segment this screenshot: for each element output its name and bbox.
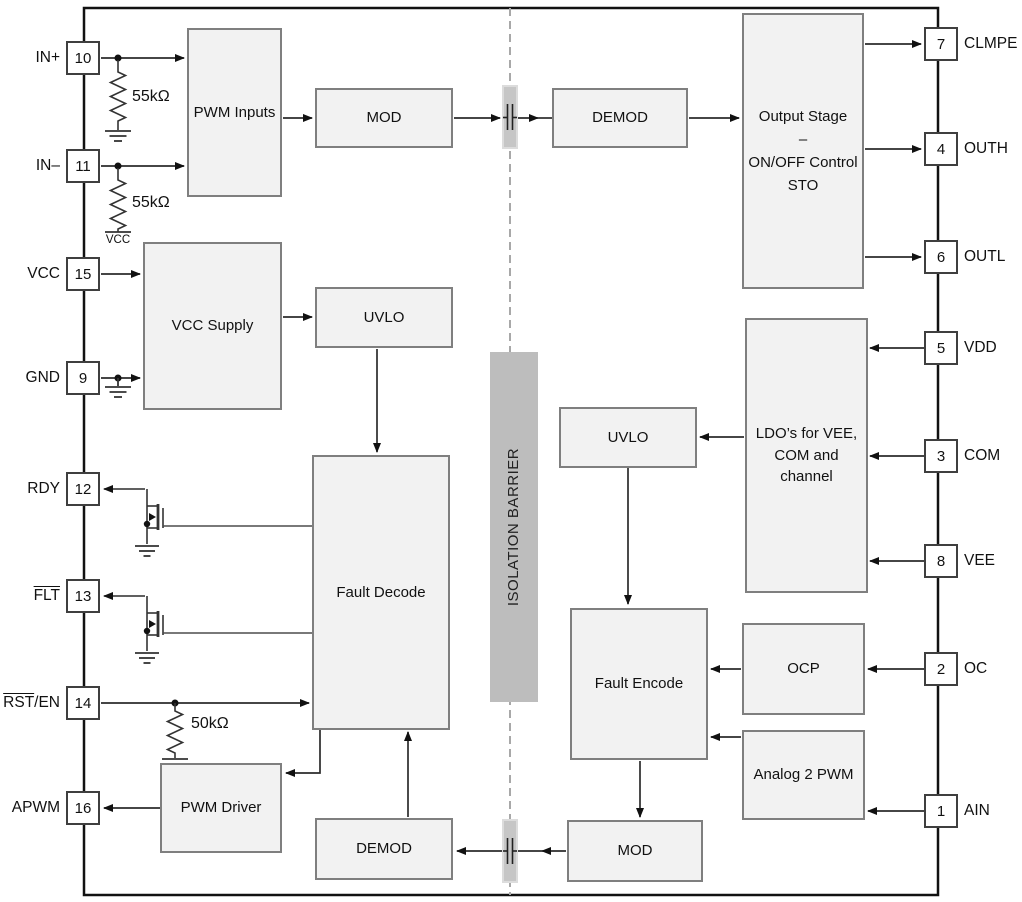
pin-box-6: 6	[924, 240, 958, 274]
pin-box-15: 15	[66, 257, 100, 291]
block-label: –	[799, 128, 807, 151]
ground-icon	[105, 131, 131, 141]
pin-box-4: 4	[924, 132, 958, 166]
pin-label-outh: OUTH	[964, 132, 1022, 166]
block-uvlo-right: UVLO	[559, 407, 697, 468]
capacitor-icon	[503, 86, 517, 148]
pin-label-outl: OUTL	[964, 240, 1022, 274]
ground-icon	[135, 546, 159, 556]
block-label: Analog 2 PWM	[753, 764, 853, 786]
pin-number: 15	[75, 266, 92, 283]
pin-box-2: 2	[924, 652, 958, 686]
block-label: VCC Supply	[172, 315, 254, 337]
pin-label-rdy: RDY	[0, 472, 60, 506]
pin-label-rst-en: RST/EN	[0, 686, 60, 720]
pin-box-16: 16	[66, 791, 100, 825]
resistor-icon	[105, 168, 131, 232]
pin-number: 16	[75, 800, 92, 817]
resistor-value-label: 50kΩ	[191, 715, 229, 733]
block-output-stage: Output Stage – ON/OFF Control STO	[742, 13, 864, 289]
block-label: Output Stage	[759, 105, 847, 128]
block-label: ON/OFF Control	[748, 151, 857, 174]
pin-number: 10	[75, 50, 92, 67]
block-pwm-driver: PWM Driver	[160, 763, 282, 853]
block-label: COM and channel	[747, 445, 866, 489]
pin-number: 5	[937, 340, 945, 357]
block-label: OCP	[787, 658, 820, 680]
pin-box-9: 9	[66, 361, 100, 395]
pin-box-11: 11	[66, 149, 100, 183]
pin-label-apwm: APWM	[0, 791, 60, 825]
block-ocp: OCP	[742, 623, 865, 715]
block-label: DEMOD	[356, 838, 412, 860]
block-fault-decode: Fault Decode	[312, 455, 450, 730]
pin-box-5: 5	[924, 331, 958, 365]
block-fault-encode: Fault Encode	[570, 608, 708, 760]
ground-icon	[135, 653, 159, 663]
mosfet-icon	[104, 596, 313, 663]
mosfet-icon	[104, 489, 313, 556]
pin-label-in-plus: IN+	[0, 41, 60, 75]
ground-icon	[105, 378, 131, 397]
block-label: STO	[788, 174, 819, 197]
block-label: Fault Encode	[595, 673, 683, 695]
capacitor-icon	[503, 820, 517, 882]
pin-label-flt: FLT	[0, 579, 60, 613]
vcc-rail-label: VCC	[100, 234, 136, 246]
resistor-value-label: 55kΩ	[132, 88, 170, 106]
pin-number: 14	[75, 695, 92, 712]
block-uvlo-left: UVLO	[315, 287, 453, 348]
block-mod-top: MOD	[315, 88, 453, 148]
pin-number: 2	[937, 661, 945, 678]
pin-number: 11	[75, 158, 91, 175]
pin-number: 13	[75, 588, 92, 605]
pin-number: 4	[937, 141, 945, 158]
pin-label-vdd: VDD	[964, 331, 1022, 365]
pin-number: 7	[937, 36, 945, 53]
pin-label-oc: OC	[964, 652, 1022, 686]
pin-number: 8	[937, 553, 945, 570]
block-label: MOD	[367, 107, 402, 129]
block-label: LDO’s for VEE,	[756, 423, 857, 445]
pin-label-vcc: VCC	[0, 257, 60, 291]
block-vcc-supply: VCC Supply	[143, 242, 282, 410]
block-mod-bottom: MOD	[567, 820, 703, 882]
pin-box-13: 13	[66, 579, 100, 613]
block-demod-bottom: DEMOD	[315, 818, 453, 880]
pin-number: 9	[79, 370, 87, 387]
pin-label-com: COM	[964, 439, 1022, 473]
block-label: DEMOD	[592, 107, 648, 129]
block-label: UVLO	[364, 307, 405, 329]
block-analog-2-pwm: Analog 2 PWM	[742, 730, 865, 820]
pin-number: 1	[937, 803, 945, 820]
pin-box-3: 3	[924, 439, 958, 473]
pin-number: 3	[937, 448, 945, 465]
pin-label-ain: AIN	[964, 794, 1022, 828]
pin-label-vee: VEE	[964, 544, 1022, 578]
block-label: UVLO	[608, 427, 649, 449]
pin-box-1: 1	[924, 794, 958, 828]
block-label: MOD	[618, 840, 653, 862]
block-pwm-inputs: PWM Inputs	[187, 28, 282, 197]
pin-box-12: 12	[66, 472, 100, 506]
block-label: Fault Decode	[336, 582, 425, 604]
pin-box-8: 8	[924, 544, 958, 578]
block-label: PWM Driver	[181, 797, 262, 819]
pin-box-14: 14	[66, 686, 100, 720]
block-label: PWM Inputs	[194, 102, 276, 124]
block-ldo: LDO’s for VEE, COM and channel	[745, 318, 868, 593]
block-demod-top: DEMOD	[552, 88, 688, 148]
isolation-barrier-label: ISOLATION BARRIER	[490, 352, 538, 702]
resistor-icon	[168, 703, 183, 758]
pin-label-gnd: GND	[0, 361, 60, 395]
pin-box-10: 10	[66, 41, 100, 75]
block-diagram: PWM Inputs MOD DEMOD Output Stage – ON/O…	[0, 0, 1022, 902]
pin-number: 6	[937, 249, 945, 266]
resistor-icon	[111, 60, 126, 130]
pin-number: 12	[75, 481, 92, 498]
resistor-value-label: 55kΩ	[132, 194, 170, 212]
pin-label-clmpe: CLMPE	[964, 27, 1022, 61]
pin-label-in-minus: IN–	[0, 149, 60, 183]
pin-box-7: 7	[924, 27, 958, 61]
